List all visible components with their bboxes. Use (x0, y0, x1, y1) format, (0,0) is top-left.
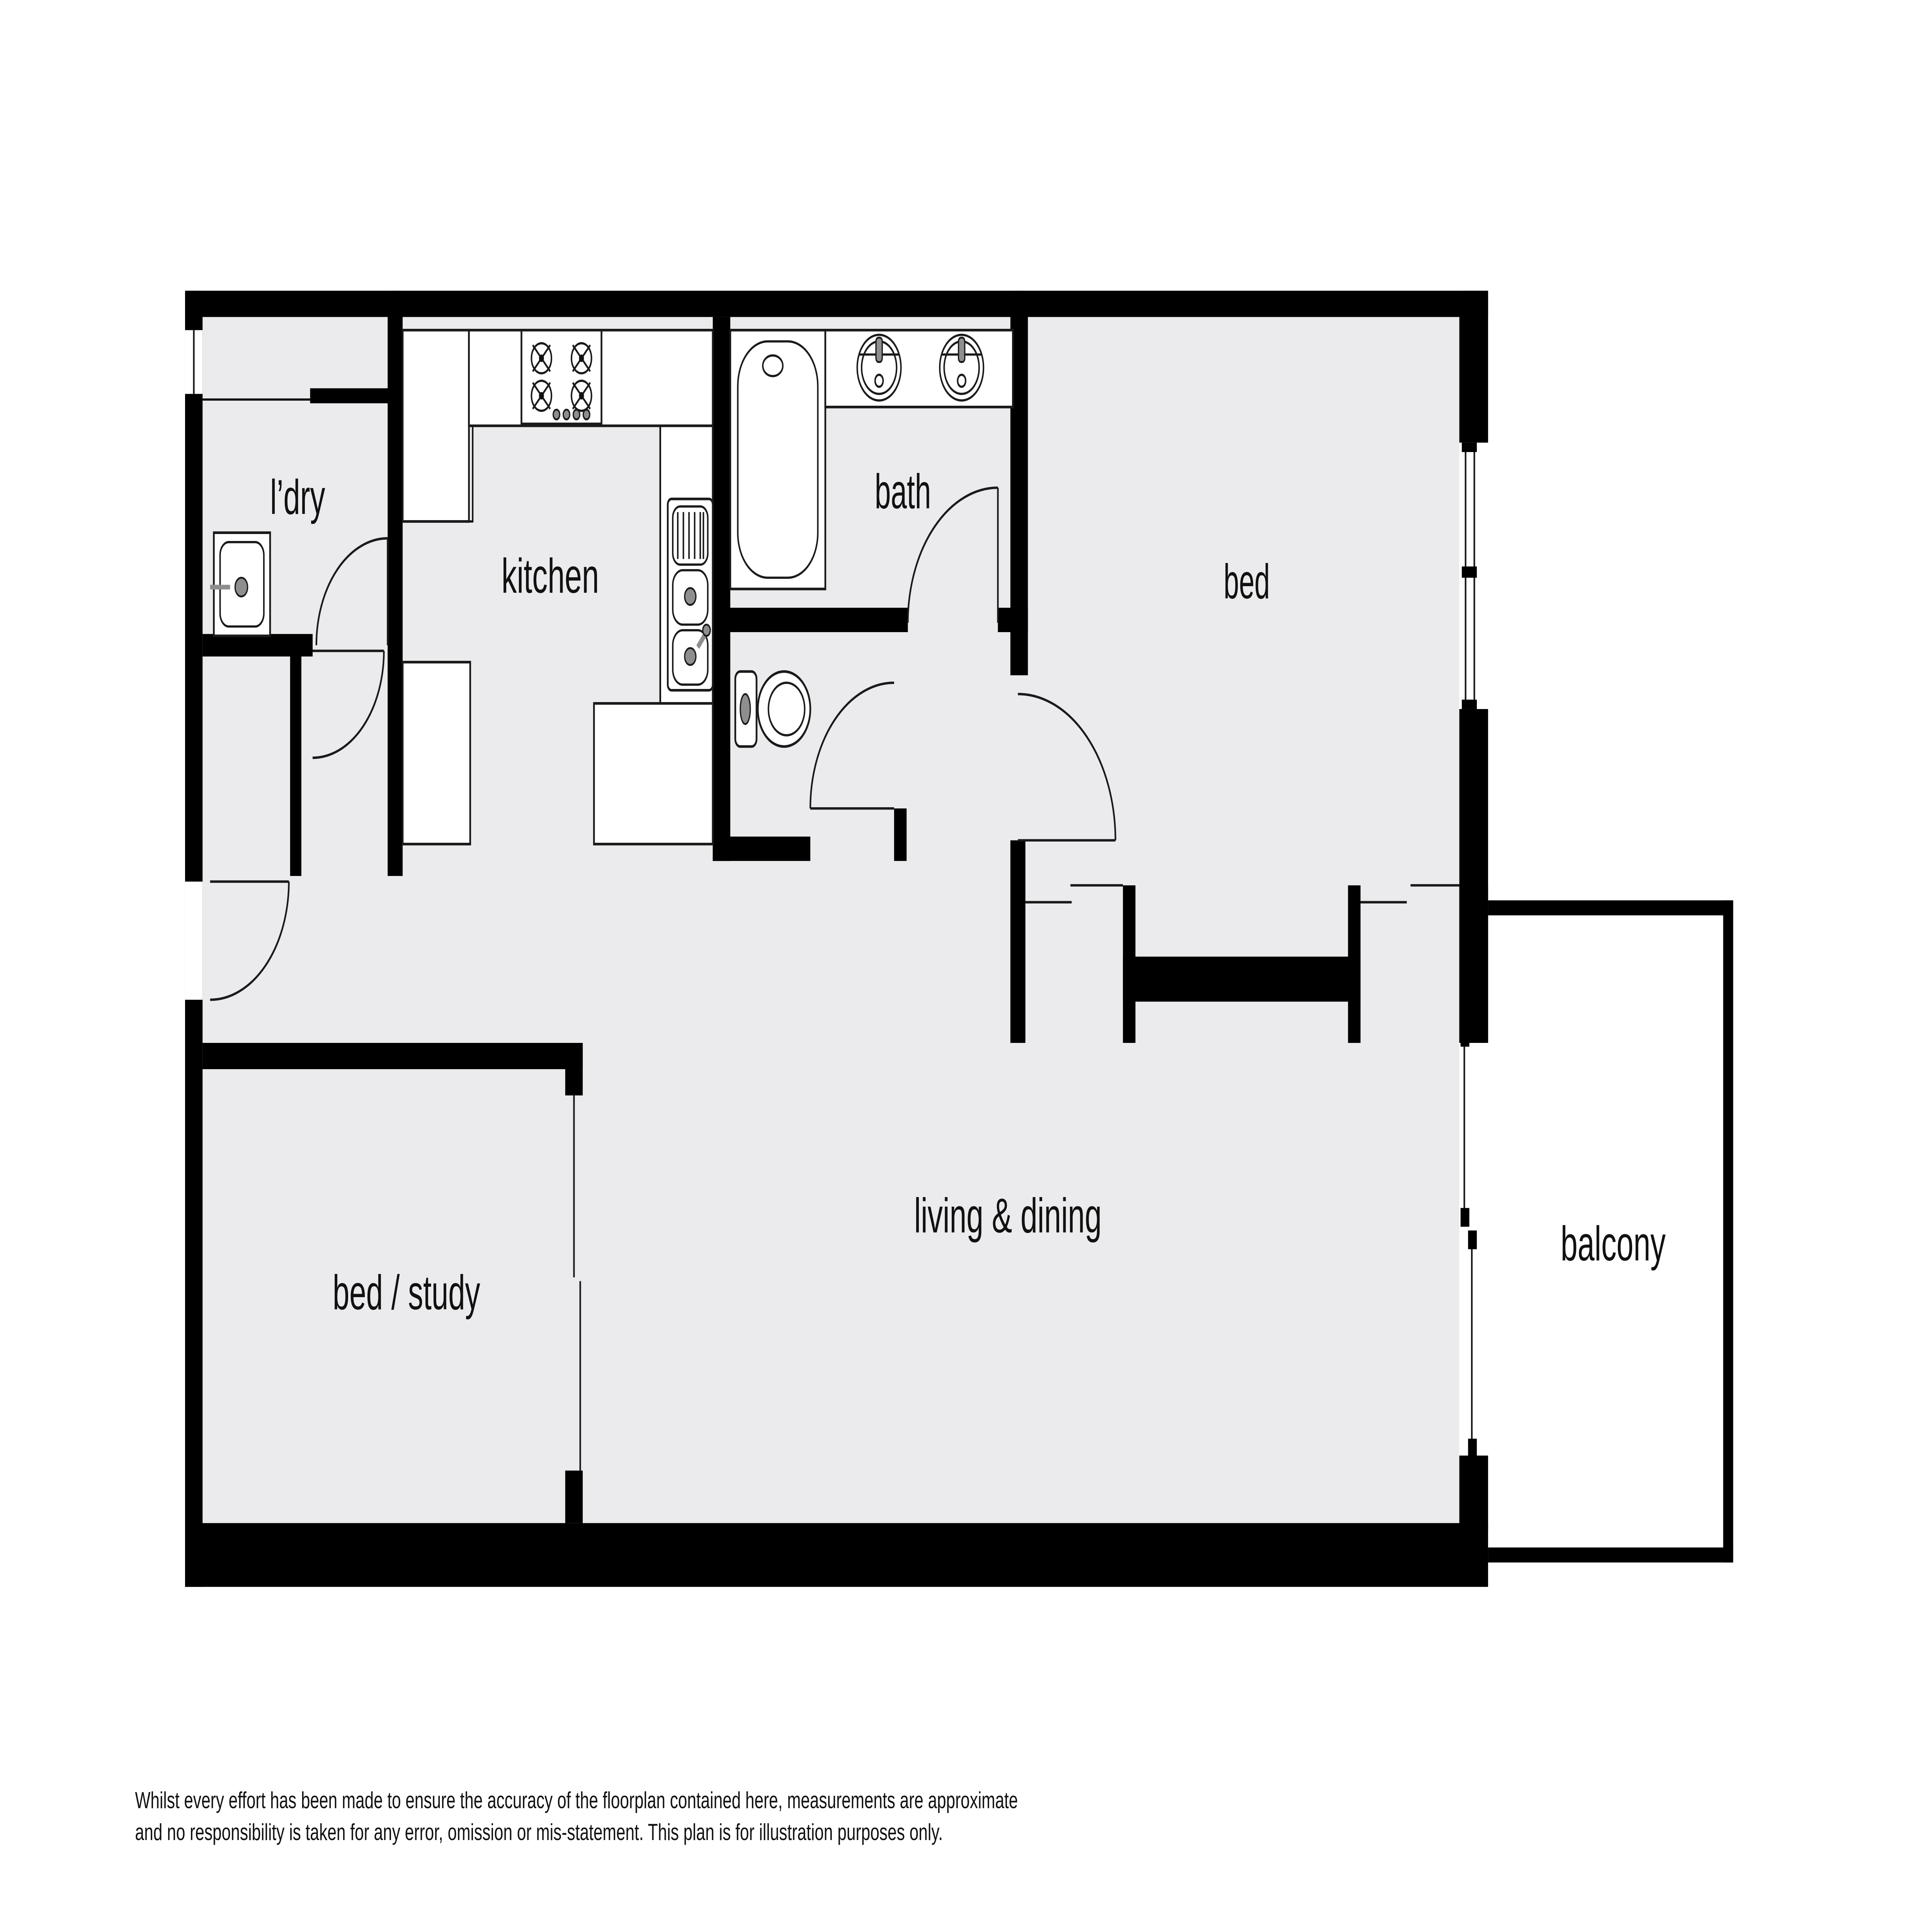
kitchen-sink-icon (668, 499, 713, 690)
stove-burner-dot4 (579, 392, 584, 400)
wall-robe-post-left (1123, 885, 1135, 1043)
wall-right-upper (1459, 291, 1488, 442)
bed-window-tick-mid (1462, 566, 1477, 578)
kitchen-bench-bottomright (594, 703, 713, 844)
balcony-slider-tick3 (1468, 1230, 1477, 1249)
vanity-icon (825, 330, 1013, 407)
laundry-faucet (235, 578, 247, 597)
laundry-area (210, 533, 270, 636)
bathtub-icon (730, 330, 825, 589)
balcony-slider-tick4 (1468, 1439, 1477, 1456)
wall-bedstudy-post-bottom (565, 1471, 583, 1523)
vanity-counter (825, 330, 1013, 407)
stove-cooktop-icon (522, 330, 602, 424)
balcony-wall-right (1723, 900, 1733, 1563)
toilet-icon (735, 672, 810, 747)
kitchen-sink-faucet (703, 625, 710, 636)
wall-right-lower (1459, 1456, 1488, 1531)
balcony-wall-top (1488, 900, 1733, 915)
stove-knob1 (553, 410, 560, 419)
kitchen-bench-topleft (403, 330, 469, 521)
room-label-balcony: balcony (1561, 1216, 1666, 1271)
wall-laundry-kitchen (388, 291, 403, 876)
wall-laundry-bottom (202, 634, 313, 656)
wall-laundry-niche (310, 388, 403, 403)
entry-door-gap (185, 882, 202, 1000)
room-label-bed-study: bed / study (333, 1265, 480, 1320)
room-label-bed: bed (1224, 554, 1270, 609)
vanity-faucet-left (876, 338, 882, 362)
wall-robe-pier (1459, 885, 1488, 1043)
stove-burner-dot2 (579, 354, 584, 362)
wall-top (185, 291, 1488, 317)
wall-bedstudy-top (202, 1043, 583, 1069)
laundry-sink-icon (210, 533, 270, 636)
wall-bath-wc-left (713, 608, 908, 632)
floorplan-canvas: l’dry kitchen bath bed living & dining b… (0, 0, 1932, 1932)
stove-burner-dot3 (539, 392, 544, 400)
wall-bedstudy-post-top (565, 1043, 583, 1095)
room-label-living-dining: living & dining (914, 1188, 1102, 1243)
stove-knob4 (583, 410, 590, 419)
wall-robe-post-right (1348, 885, 1361, 1043)
stove-body (522, 330, 602, 424)
kitchen-sink-drain2 (685, 648, 696, 665)
floorplan-page: l’dry kitchen bath bed living & dining b… (0, 0, 1932, 1932)
wall-lobby-right (290, 656, 301, 876)
stove-knob3 (573, 410, 580, 419)
toilet-button (740, 694, 750, 724)
bed-window-tick-bottom (1462, 700, 1477, 709)
room-label-bath: bath (875, 464, 931, 519)
wall-bed-living (1123, 957, 1361, 1002)
disclaimer-line1: Whilst every effort has been made to ens… (135, 1787, 1018, 1813)
bathtub-deck (730, 330, 825, 589)
room-label-laundry: l’dry (270, 470, 325, 524)
stove-burner-dot1 (539, 354, 544, 362)
disclaimer-line2: and no responsibility is taken for any e… (135, 1819, 943, 1845)
vanity-faucet-right (959, 338, 965, 362)
wall-wc-bottom (713, 837, 810, 861)
balcony-wall-bottom (1488, 1548, 1733, 1563)
stove-knob2 (563, 410, 570, 419)
room-label-kitchen: kitchen (502, 549, 599, 603)
balcony-slider-tick1 (1461, 1030, 1469, 1047)
kitchen-sink-drain1 (685, 588, 696, 605)
kitchen-bench-bottomleft (403, 662, 470, 844)
wall-bottom (185, 1523, 1488, 1587)
wall-kitchen-bath (713, 317, 730, 861)
bed-window-tick-top (1462, 443, 1477, 452)
wall-hall-bed-lower (1010, 840, 1026, 1043)
balcony-slider-tick2 (1461, 1208, 1469, 1227)
wall-wc-doorpost (894, 808, 906, 861)
